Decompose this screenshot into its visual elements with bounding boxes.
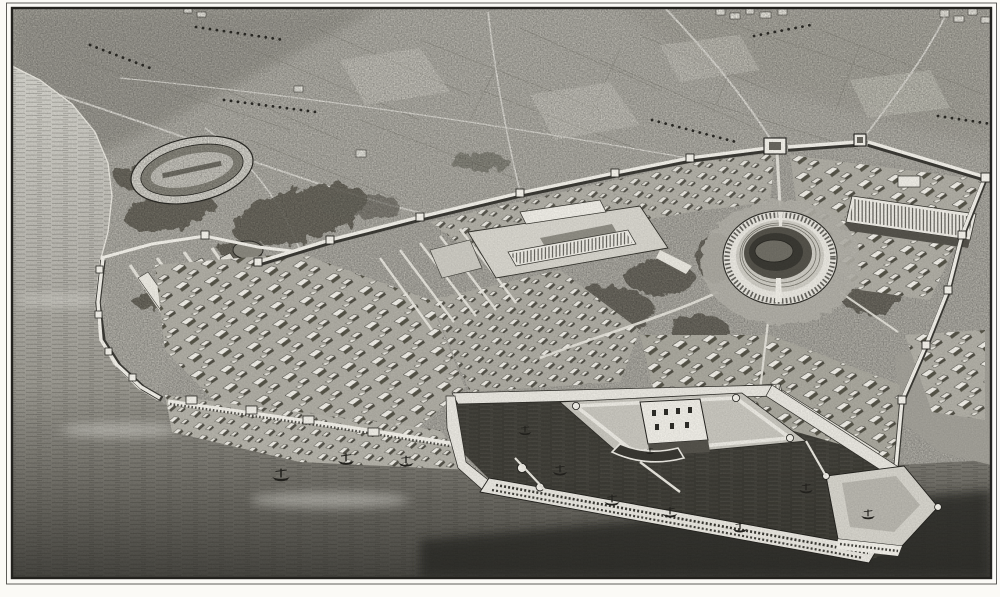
plate-grain bbox=[12, 8, 991, 578]
engraving-plate bbox=[0, 0, 1000, 597]
